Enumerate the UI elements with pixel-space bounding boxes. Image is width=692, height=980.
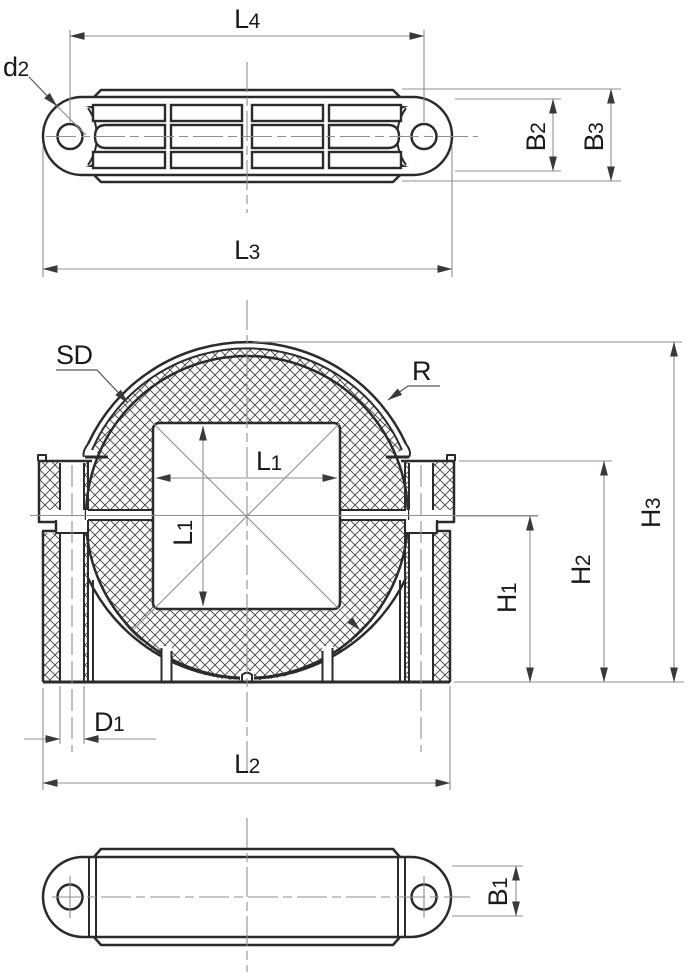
leader-SD: SD [56,340,128,403]
bore-diagonal-2 [134,423,340,629]
shell-right-hook [406,444,410,457]
dimension-label-L2: L2 [234,749,260,779]
leader-R: R [388,356,440,400]
shell-left-hook [84,444,89,457]
dimension-H2: H2 [566,461,604,682]
label-R: R [412,356,431,386]
bottom-view: B1 [43,818,523,972]
top-view: L4 L3 d2 B2 B3 [3,4,621,277]
dimension-label-B1: B1 [483,878,513,907]
dimension-label-H3: H3 [636,498,666,528]
top-view-part [43,62,478,213]
label-SD: SD [56,340,93,370]
dimension-label-d2: d2 [3,52,29,82]
dimension-label-L1-horizontal: L1 [256,446,282,476]
dimension-label-B3: B3 [579,123,609,152]
dimension-label-H1: H1 [492,583,522,613]
dimension-B2: B2 [455,99,561,171]
dimension-label-L1-vertical: L1 [168,520,198,546]
front-view: SD R L1 L1 H1 H2 H3 [24,300,684,790]
pipe-clamp-three-view-drawing: L4 L3 d2 B2 B3 [0,0,692,980]
dimension-H3: H3 [636,342,674,682]
dimension-label-L3: L3 [234,235,260,265]
dimension-label-D1: D1 [94,707,124,737]
technical-drawing-page: L4 L3 d2 B2 B3 [0,0,692,980]
dimension-label-L4: L4 [234,4,261,34]
dimension-label-B2: B2 [521,123,551,152]
front-view-part [30,300,538,772]
dimension-B1: B1 [452,866,523,916]
dimension-D1: D1 [24,686,156,744]
bottom-view-part [43,818,470,972]
dimension-label-H2: H2 [566,555,596,585]
